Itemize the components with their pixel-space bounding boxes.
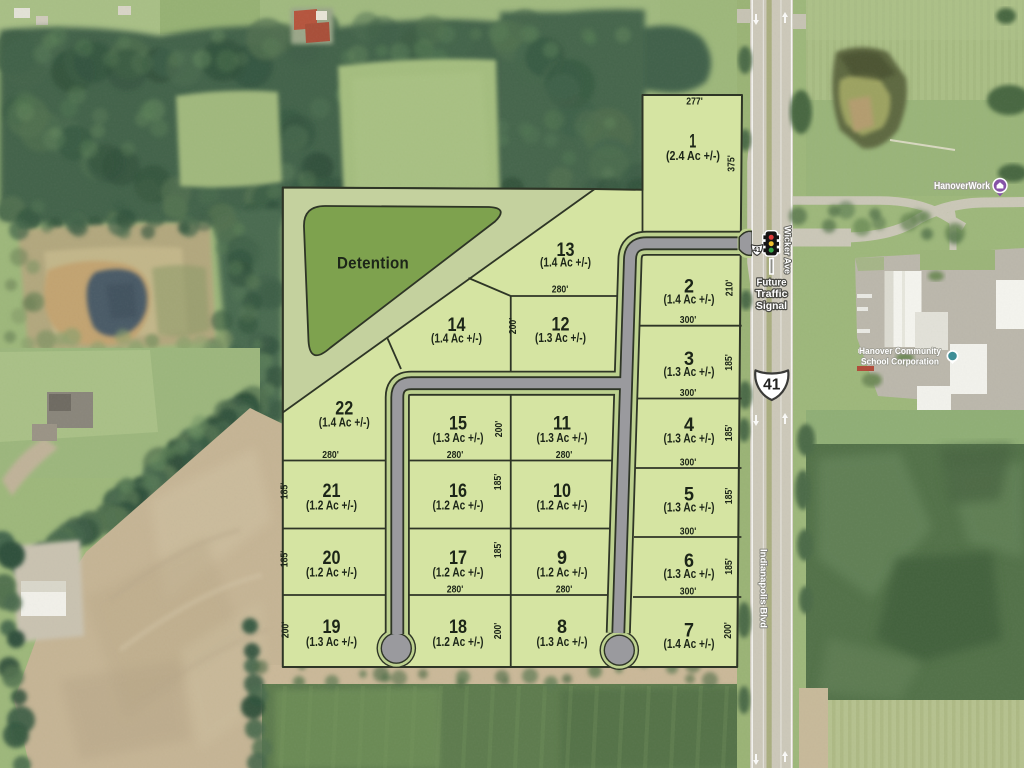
- svg-text:(1.4 Ac +/-): (1.4 Ac +/-): [664, 637, 715, 651]
- svg-text:(1.2 Ac +/-): (1.2 Ac +/-): [433, 566, 484, 580]
- svg-text:300': 300': [680, 315, 697, 326]
- svg-text:277': 277': [686, 97, 703, 108]
- svg-text:(1.4 Ac +/-): (1.4 Ac +/-): [540, 255, 591, 269]
- svg-text:280': 280': [447, 584, 464, 595]
- svg-text:(1.4 Ac +/-): (1.4 Ac +/-): [431, 332, 482, 346]
- svg-text:41: 41: [753, 247, 761, 254]
- svg-text:(1.2 Ac +/-): (1.2 Ac +/-): [433, 635, 484, 649]
- svg-text:200': 200': [723, 622, 734, 639]
- svg-text:280': 280': [556, 450, 573, 461]
- svg-text:41: 41: [763, 377, 781, 394]
- svg-text:185': 185': [724, 558, 735, 575]
- svg-text:(1.3 Ac +/-): (1.3 Ac +/-): [433, 431, 484, 445]
- svg-text:Signal: Signal: [756, 300, 787, 312]
- svg-text:300': 300': [680, 526, 697, 537]
- svg-text:Indianapolis Blvd: Indianapolis Blvd: [758, 549, 768, 628]
- svg-text:School Corporation: School Corporation: [861, 357, 939, 368]
- svg-text:210': 210': [725, 280, 736, 297]
- svg-text:(2.4 Ac +/-): (2.4 Ac +/-): [666, 149, 720, 163]
- svg-text:Hanover Community: Hanover Community: [859, 346, 942, 357]
- svg-text:280': 280': [556, 584, 573, 595]
- svg-text:185': 185': [493, 474, 504, 491]
- svg-text:(1.2 Ac +/-): (1.2 Ac +/-): [306, 499, 357, 513]
- svg-text:Wicker Ave: Wicker Ave: [782, 226, 793, 274]
- svg-text:375': 375': [727, 155, 738, 172]
- svg-text:300': 300': [680, 586, 697, 597]
- svg-text:280': 280': [552, 285, 569, 296]
- svg-text:Future: Future: [757, 277, 787, 289]
- svg-text:(1.3 Ac +/-): (1.3 Ac +/-): [664, 365, 715, 379]
- svg-text:300': 300': [680, 388, 697, 399]
- svg-text:200': 200': [493, 623, 504, 640]
- svg-text:(1.2 Ac +/-): (1.2 Ac +/-): [306, 566, 357, 580]
- svg-text:(1.2 Ac +/-): (1.2 Ac +/-): [537, 499, 588, 513]
- svg-text:(1.3 Ac +/-): (1.3 Ac +/-): [535, 331, 586, 345]
- svg-text:280': 280': [322, 450, 339, 461]
- svg-text:(1.2 Ac +/-): (1.2 Ac +/-): [537, 566, 588, 580]
- svg-text:185': 185': [724, 354, 735, 371]
- svg-text:(1.3 Ac +/-): (1.3 Ac +/-): [537, 431, 588, 445]
- svg-text:185': 185': [724, 488, 735, 505]
- svg-text:(1.3 Ac +/-): (1.3 Ac +/-): [664, 432, 715, 446]
- svg-text:300': 300': [680, 457, 697, 468]
- svg-text:Traffic: Traffic: [756, 288, 788, 300]
- svg-text:(1.3 Ac +/-): (1.3 Ac +/-): [664, 567, 715, 581]
- svg-text:(1.3 Ac +/-): (1.3 Ac +/-): [664, 501, 715, 515]
- svg-text:(1.3 Ac +/-): (1.3 Ac +/-): [306, 635, 357, 649]
- svg-text:(1.2 Ac +/-): (1.2 Ac +/-): [433, 499, 484, 513]
- svg-text:200': 200': [494, 421, 505, 438]
- svg-text:200': 200': [281, 622, 292, 639]
- svg-text:HanoverWork: HanoverWork: [934, 181, 990, 192]
- svg-text:200': 200': [508, 318, 519, 335]
- svg-text:Detention: Detention: [337, 254, 409, 272]
- svg-text:185': 185': [724, 425, 735, 442]
- svg-text:185': 185': [280, 483, 291, 500]
- svg-text:(1.4 Ac +/-): (1.4 Ac +/-): [664, 293, 715, 307]
- svg-text:185': 185': [280, 551, 291, 568]
- svg-text:(1.4 Ac +/-): (1.4 Ac +/-): [319, 416, 370, 430]
- svg-text:280': 280': [447, 450, 464, 461]
- svg-text:185': 185': [493, 542, 504, 559]
- svg-text:(1.3 Ac +/-): (1.3 Ac +/-): [537, 635, 588, 649]
